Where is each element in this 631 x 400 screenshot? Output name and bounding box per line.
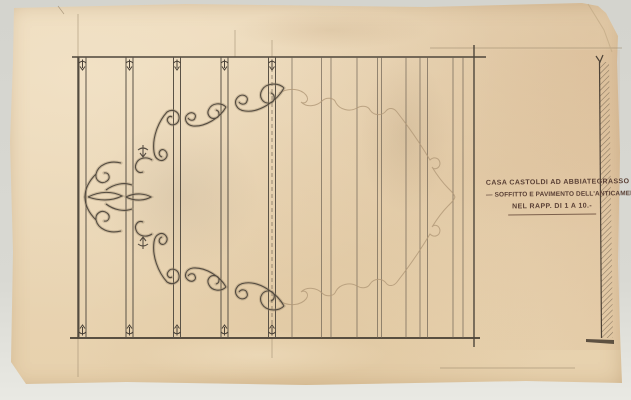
title-line-subject: —SOFFITTO E PAVIMENTO DELL'ANTICAMERA [486,188,618,201]
paper-tear-crease [588,4,612,52]
scale-text: NEL RAPP. DI 1 A 10.- [508,201,596,216]
project-title-text: CASA CASTOLDI AD ABBIATEGRASSO [486,178,630,187]
subject-title-text: SOFFITTO E PAVIMENTO DELL'ANTICAMERA [495,190,631,199]
dash-mark: — [486,192,493,199]
baroque-scroll-ornaments [85,84,284,310]
ornament-shading [85,84,284,310]
floor-board-lines [292,57,463,338]
scan-background: { "title_block": { "line1": "CASA CASTOL… [0,0,631,400]
title-block: CASA CASTOLDI AD ABBIATEGRASSO —SOFFITTO… [486,176,618,215]
cartouche-outline [279,89,455,304]
title-line-scale: NEL RAPP. DI 1 A 10.- [486,200,618,215]
